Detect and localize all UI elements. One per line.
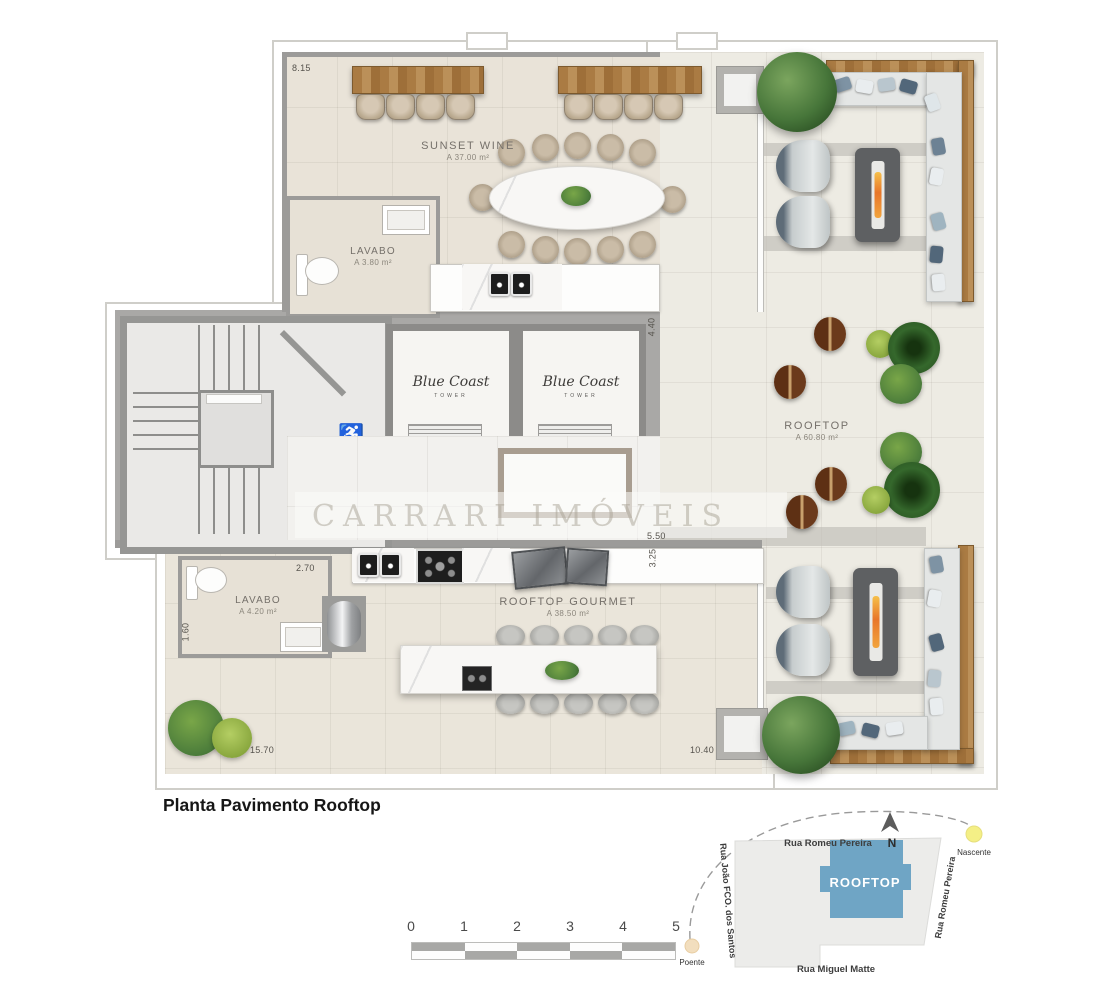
kitchen-sink [489,272,510,296]
service-lift [327,601,361,647]
pillow [929,555,945,574]
plant [880,364,922,404]
bar-stool [386,94,415,120]
dining-chair [498,231,525,258]
scale-tick: 1 [453,918,475,934]
scale-bar [411,942,676,960]
gourmet-counter-marble [462,548,510,582]
island-centerpiece [545,661,579,680]
kitchen-sink [358,553,379,577]
island-chair [496,692,525,714]
sofa-frame-wood [830,748,974,764]
dining-chair [564,238,591,265]
dining-chair [629,231,656,258]
pillow [929,697,943,715]
room-label-gourmet: ROOFTOP GOURMET A 38.50 m² [478,596,658,619]
pouf [814,317,846,351]
gas-cooktop [416,549,464,584]
bar-stool [654,94,683,120]
kitchen-sink [511,272,532,296]
toilet-bowl [195,567,227,593]
tv-screen [565,548,609,587]
compass-n: N [888,836,897,850]
paving-band [766,681,924,694]
island-chair [530,625,559,647]
room-label-sunset-wine: SUNSET WINE A 37.00 m² [388,140,548,163]
room-label-lavabo-top: LAVABO A 3.80 m² [323,246,423,268]
pillow [929,245,943,263]
lounge-chair [776,566,830,618]
lounge-chair [776,140,830,192]
plant [884,462,940,518]
glass-wall [757,112,764,312]
pouf [815,467,847,501]
floor-plan-page: ♿ Blue Coast TOWER Blue Coast TOWER CARR… [0,0,1100,997]
bar-stool [624,94,653,120]
fire-pit-table [855,148,900,242]
stair-flight [198,462,268,534]
bar-stool [594,94,623,120]
dining-chair [564,132,591,159]
bar-stool [356,94,385,120]
flame [874,172,881,217]
scale-tick: 3 [559,918,581,934]
pillow [877,77,896,92]
island-chair [564,625,593,647]
dining-chair [532,236,559,263]
fire-pit-table [853,568,898,676]
tree [757,52,837,132]
bar-stool [446,94,475,120]
page-title: Planta Pavimento Rooftop [163,795,381,816]
lounge-chair [776,196,830,248]
brand-script: Blue Coast [543,374,620,390]
dim-lavabo-width: 2.70 [296,563,315,573]
pillow [931,137,947,156]
island-chair [530,692,559,714]
flame [872,596,879,648]
street-top: Rua Romeu Pereira [784,838,872,849]
west-label: Poente [679,958,705,967]
scale-tick: 0 [400,918,422,934]
north-arrow-icon [881,812,899,832]
pillow [855,79,874,95]
stair-flight [198,325,268,391]
island-chair [564,692,593,714]
island-chair [598,625,627,647]
tv-screen [511,546,569,589]
sink [382,205,430,235]
sun-east-icon [966,826,982,842]
scale-tick: 4 [612,918,634,934]
dim-lavabo-height: 1.60 [180,623,190,642]
street-bottom: Rua Miguel Matte [797,964,875,975]
bar-table [558,66,702,94]
stair-flight [133,392,199,460]
pouf [774,365,806,399]
planter-box [716,708,768,760]
island-chair [598,692,627,714]
lounge-chair [776,624,830,676]
dim-bottom-left-width: 15.70 [250,745,274,755]
stair-landing-mat [206,394,262,404]
parapet-pillar [466,32,508,50]
bar-table [352,66,484,94]
sofa-frame-wood [958,545,974,764]
wall [282,52,660,57]
pouf [786,495,818,529]
dim-top-width: 8.15 [292,63,311,73]
site-building-label: ROOFTOP [829,875,900,890]
dim-bottom-right-width: 10.40 [690,745,714,755]
dining-chair [597,134,624,161]
pillow [885,721,904,736]
island-table [400,645,657,694]
bar-stool [416,94,445,120]
brand-sub: TOWER [564,393,598,399]
room-label-rooftop: ROOFTOP A 60.80 m² [737,420,897,443]
brand-script: Blue Coast [413,374,490,390]
site-plan: ROOFTOP Rua Romeu Pereira Rua João FCO. … [668,806,1002,992]
island-chair [630,692,659,714]
dim-mid-height: 3.25 [647,549,657,568]
room-label-lavabo-bottom: LAVABO A 4.20 m² [208,595,308,617]
bar-stool [564,94,593,120]
sink [280,622,326,652]
plant [862,486,890,514]
brand-sub: TOWER [434,393,468,399]
parapet-pillar [676,32,718,50]
kitchen-sink [380,553,401,577]
east-label: Nascente [957,848,991,857]
table-centerpiece [561,186,591,206]
dim-core-height: 4.40 [646,318,656,337]
island-chair [630,625,659,647]
tree [762,696,840,774]
dining-chair [597,236,624,263]
island-cooktop [462,666,492,691]
sun-west-icon [685,939,699,953]
plant [212,718,252,758]
dim-mid-width: 5.50 [647,531,666,541]
watermark: CARRARI IMÓVEIS [312,499,730,534]
scale-tick: 2 [506,918,528,934]
pillow [927,669,941,687]
island-chair [496,625,525,647]
dining-chair [629,139,656,166]
pillow [931,273,945,291]
